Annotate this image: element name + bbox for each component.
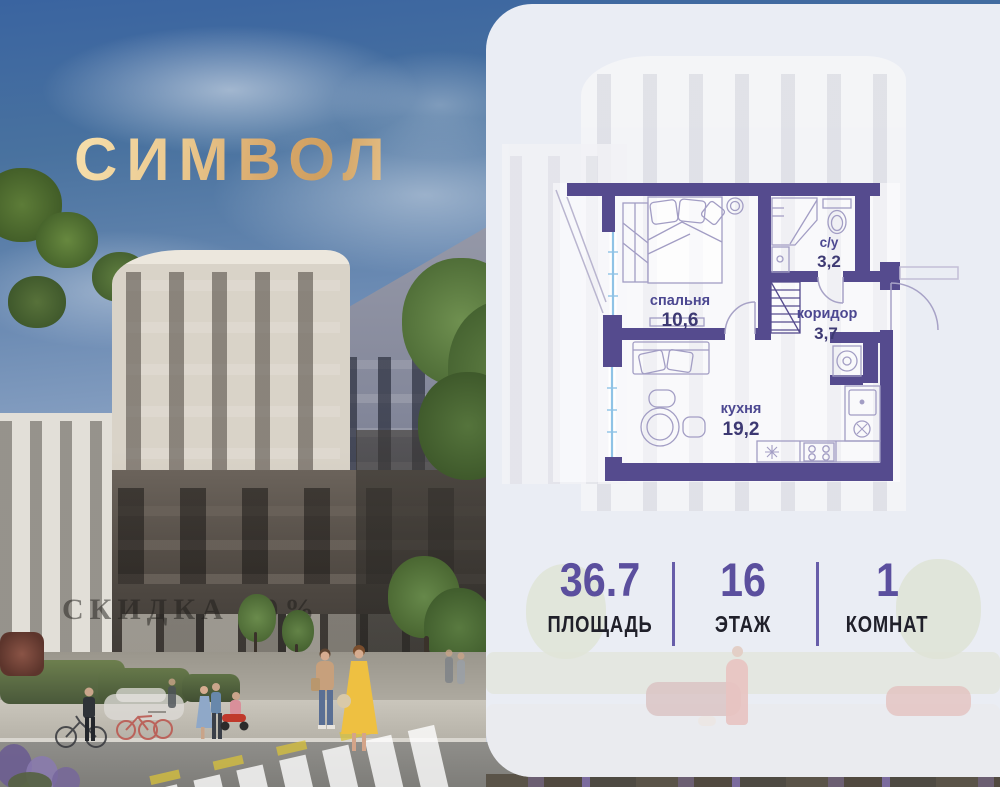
floor-plan: спальня 10,6 с/у 3,2 коридор 3,7 кухня 1… — [545, 178, 965, 490]
ghost-pedestrian — [726, 659, 748, 725]
crosswalk — [147, 711, 454, 787]
sapling — [238, 594, 276, 642]
pedestrian-couple — [196, 683, 222, 739]
stat-rooms-value: 1 — [875, 556, 898, 603]
stat-rooms: 1 КОМНАТ — [835, 556, 938, 636]
room-name-bedroom: спальня — [650, 293, 710, 309]
tree-branch-leaves — [36, 212, 98, 268]
room-name-bathroom: с/у — [820, 235, 839, 250]
room-area-bedroom: 10,6 — [662, 310, 699, 331]
duct-shaft — [771, 282, 800, 333]
stat-floor-value: 16 — [720, 556, 766, 603]
stats-divider — [672, 562, 675, 646]
photo-watermark: СКИДКА 10% — [62, 595, 320, 625]
bicycle — [56, 716, 106, 747]
room-area-bathroom: 3,2 — [817, 252, 841, 271]
room-name-kitchen: кухня — [721, 401, 762, 417]
brand-logo: СИМВОЛ — [74, 130, 394, 190]
ghost-dog — [698, 716, 716, 726]
room-name-corridor: коридор — [797, 306, 858, 322]
tree-branch-leaves — [8, 276, 66, 328]
entrance-landing — [900, 267, 958, 279]
stat-floor: 16 ЭТАЖ — [708, 556, 778, 636]
pedestrian-beige — [311, 649, 335, 730]
apartment-stats: 36.7 ПЛОЩАДЬ 16 ЭТАЖ 1 КОМНАТ — [486, 556, 1000, 666]
street-scene — [0, 640, 486, 787]
apartment-card[interactable]: спальня 10,6 с/у 3,2 коридор 3,7 кухня 1… — [486, 4, 1000, 777]
listing-screenshot: СКИДКА 10% — [0, 0, 1000, 787]
stat-area: 36.7 ПЛОЩАДЬ — [534, 556, 665, 636]
ghost-car — [886, 686, 971, 716]
lavender-flowers — [0, 744, 80, 787]
stat-area-label: ПЛОЩАДЬ — [547, 613, 652, 636]
room-area-kitchen: 19,2 — [723, 419, 760, 440]
stat-rooms-label: КОМНАТ — [846, 613, 929, 636]
stat-area-value: 36.7 — [560, 556, 641, 603]
scooter — [221, 692, 249, 731]
pedestrian — [83, 688, 95, 742]
room-area-corridor: 3,7 — [814, 324, 838, 343]
stat-floor-label: ЭТАЖ — [715, 613, 771, 636]
stats-divider — [816, 562, 819, 646]
